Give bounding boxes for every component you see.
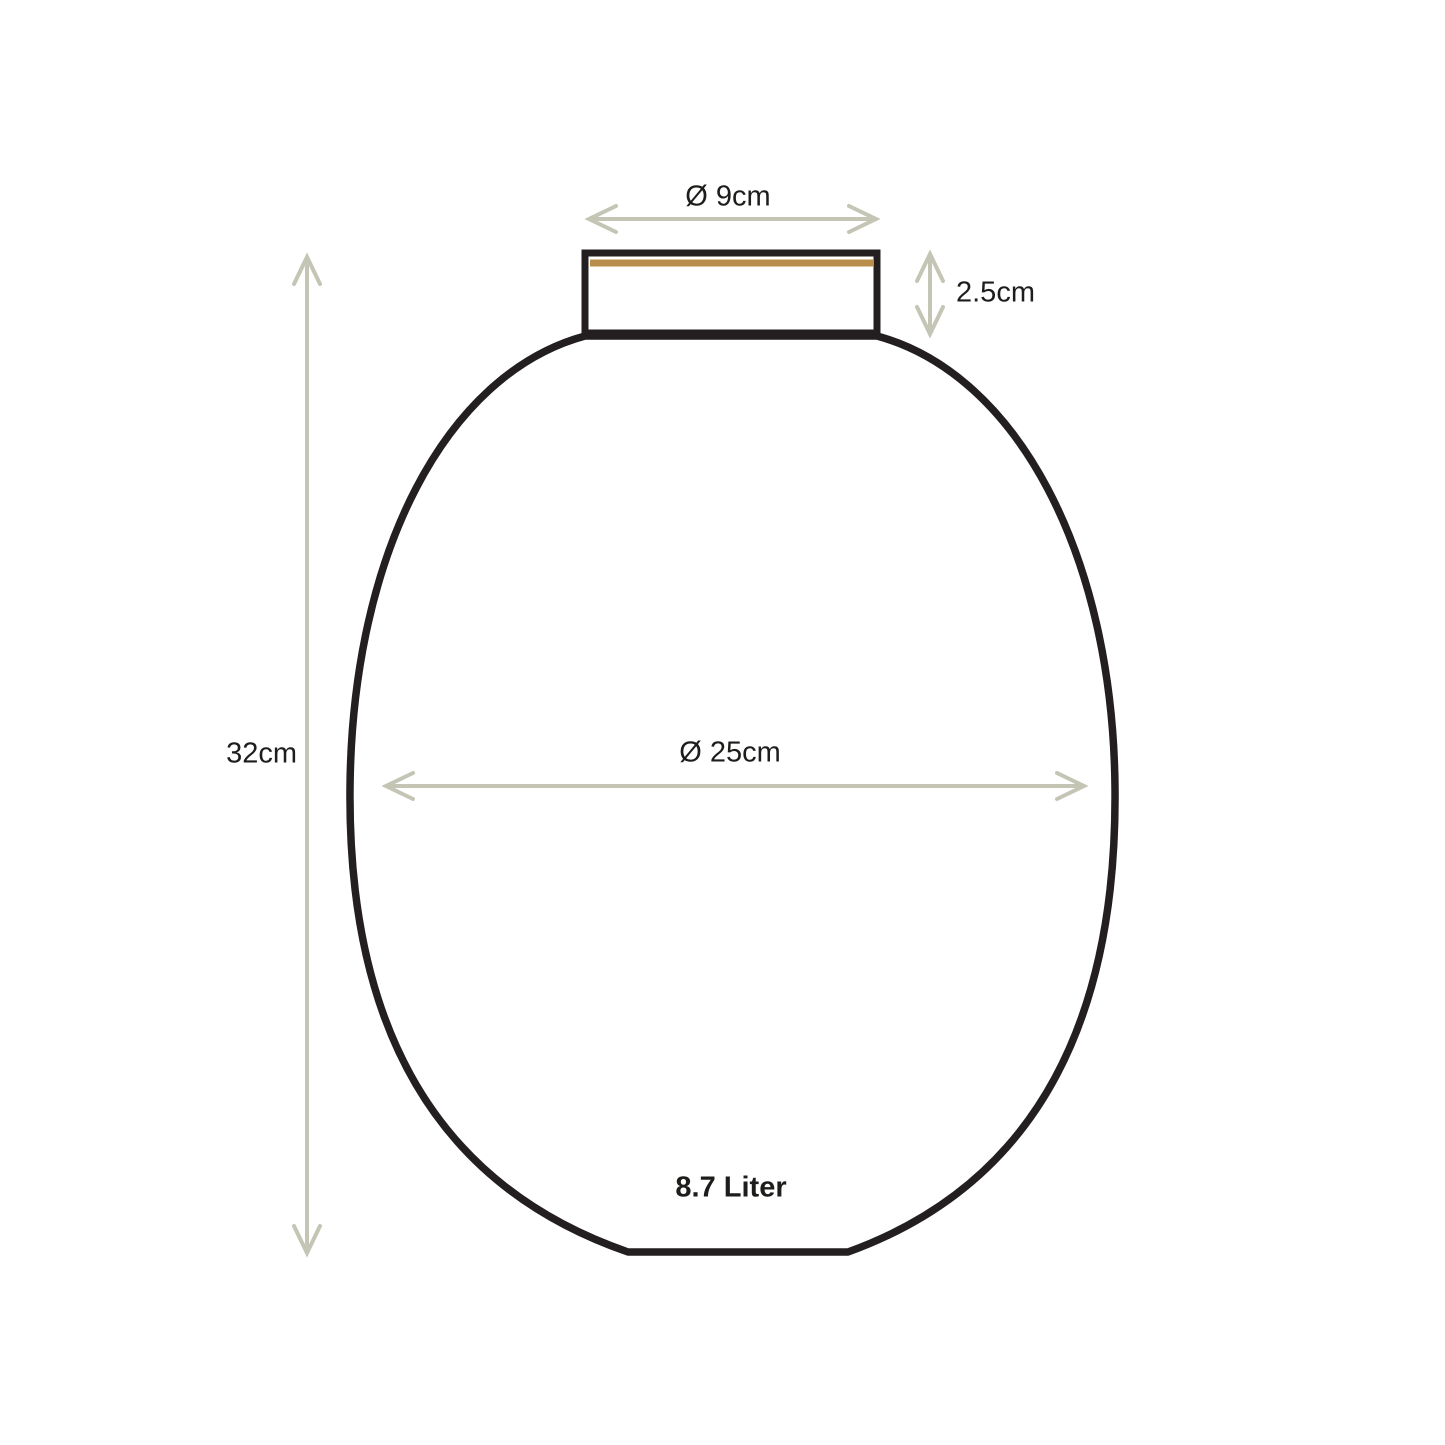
body-diameter-arrow	[386, 773, 1084, 799]
neck-height-arrow	[917, 254, 943, 334]
volume-label: 8.7 Liter	[675, 1174, 786, 1203]
opening-diameter-label: Ø 9cm	[685, 183, 770, 212]
total-height-arrow	[294, 257, 320, 1253]
total-height-label: 32cm	[226, 740, 297, 769]
neck-height-label: 2.5cm	[956, 279, 1035, 308]
body-diameter-label: Ø 25cm	[679, 739, 781, 768]
diagram-drawing	[0, 0, 1445, 1445]
vase-dimension-diagram: Ø 9cm 2.5cm 32cm Ø 25cm 8.7 Liter	[0, 0, 1445, 1445]
vase-body-outline	[350, 336, 1115, 1252]
